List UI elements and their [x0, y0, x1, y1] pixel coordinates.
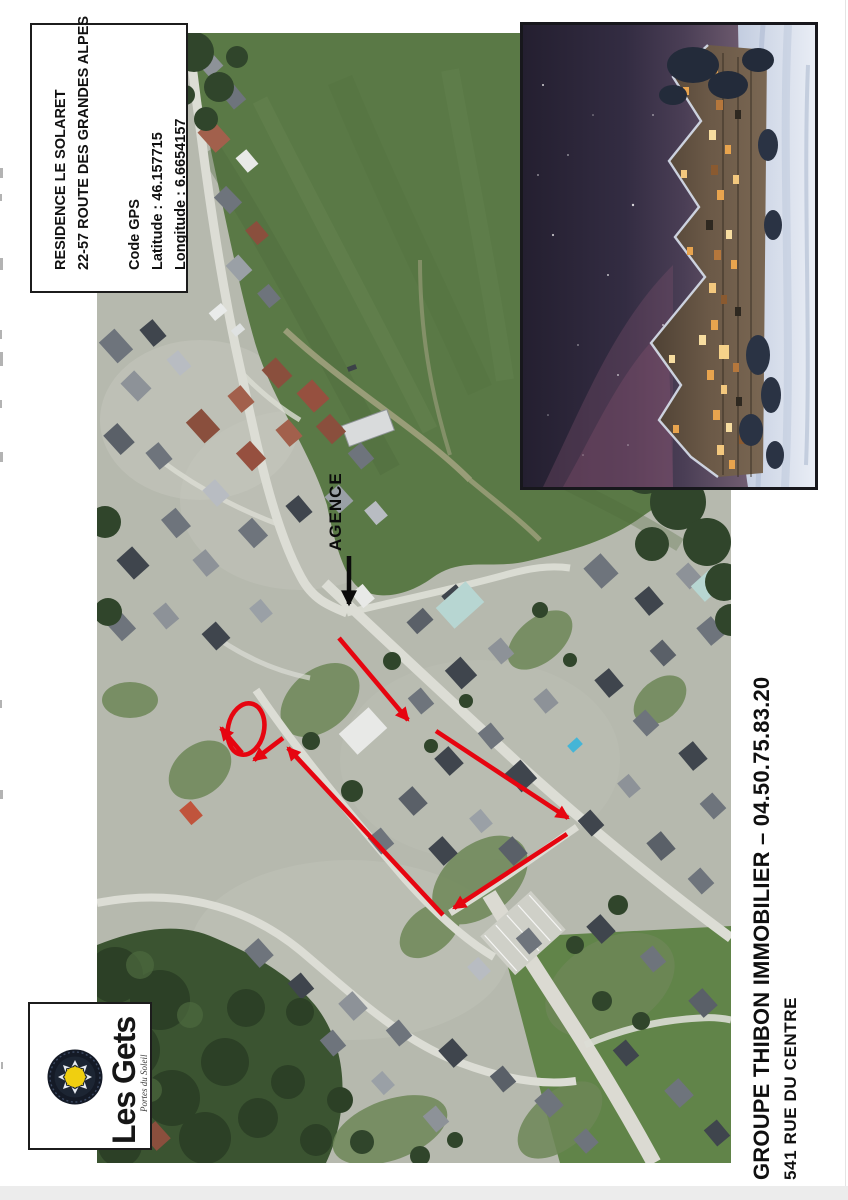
les-gets-logo-box: Les Gets Portes du Soleil: [28, 1002, 152, 1150]
agency-contact: GROUPE THIBON IMMOBILIER – 04.50.75.83.2…: [749, 677, 775, 1180]
scan-mark: [0, 790, 3, 799]
logo-tagline-text: Portes du Soleil: [139, 1055, 149, 1113]
scan-mark: [0, 700, 2, 708]
residence-address: 22-57 ROUTE DES GRANDES ALPES: [73, 8, 96, 270]
scan-mark: [0, 168, 3, 178]
info-box-text: RESIDENCE LE SOLARET 22-57 ROUTE DES GRA…: [34, 8, 200, 288]
scan-mark: [0, 452, 3, 462]
scan-mark: [0, 400, 2, 408]
logo-brand-text: Les Gets: [106, 1017, 143, 1144]
info-box: RESIDENCE LE SOLARET 22-57 ROUTE DES GRA…: [30, 23, 188, 293]
gps-latitude: Latitude : 46.157715: [147, 8, 170, 270]
property-photo-inset: [520, 22, 818, 490]
scan-mark: [1, 1062, 3, 1069]
agency-address: 541 RUE DU CENTRE: [781, 997, 801, 1180]
agence-label: AGENCE: [326, 472, 345, 551]
scan-edge-line: [845, 0, 846, 1200]
scan-mark: [0, 258, 3, 270]
scan-mark: [0, 330, 2, 339]
scan-bottom-band: [0, 1186, 848, 1200]
gps-longitude: Longitude : 6.6654157: [170, 8, 193, 270]
gps-heading: Code GPS: [124, 8, 147, 270]
scan-mark: [0, 352, 3, 366]
chalet-night-render: [523, 25, 815, 487]
residence-name: RESIDENCE LE SOLARET: [50, 8, 73, 270]
les-gets-emblem-icon: [38, 1040, 112, 1114]
scan-mark: [0, 194, 2, 201]
document-page: AGENCE: [0, 0, 848, 1200]
